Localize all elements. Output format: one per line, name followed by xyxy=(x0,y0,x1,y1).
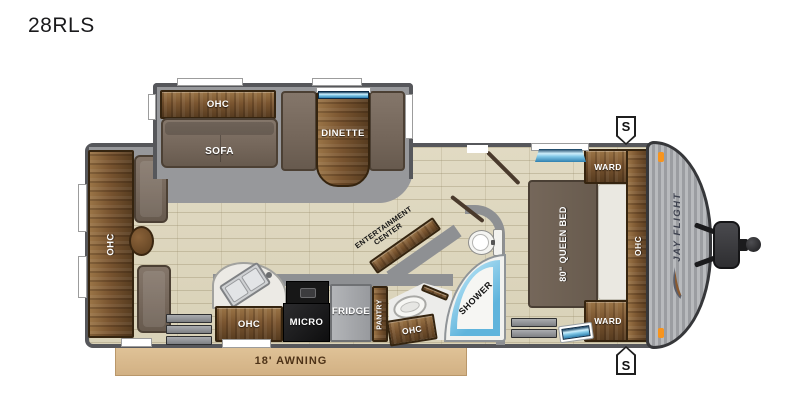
dinette-label: DINETTE xyxy=(321,128,364,139)
toilet-seat xyxy=(472,234,489,251)
window xyxy=(78,184,87,232)
speaker-bottom-label: S xyxy=(616,358,636,373)
window xyxy=(222,339,271,348)
awning-banner: 18' AWNING xyxy=(115,345,467,376)
ward-bottom-label: WARD xyxy=(594,316,622,326)
sofa: SOFA xyxy=(161,118,278,168)
micro-label: MICRO xyxy=(290,317,324,328)
speaker-badge-bottom: S xyxy=(616,346,636,375)
pantry-label: PANTRY xyxy=(377,299,384,329)
jayflight-bird-icon xyxy=(671,266,683,300)
fridge-label: FRIDGE xyxy=(332,306,370,317)
speaker-top-label: S xyxy=(616,119,636,134)
entry-steps-main xyxy=(166,314,212,347)
stove xyxy=(286,281,329,304)
kitchen-ohc-label: OHC xyxy=(238,319,260,330)
bed-pillow-strip xyxy=(598,184,628,300)
toilet xyxy=(468,227,503,258)
speaker-badge-top: S xyxy=(616,116,636,145)
window xyxy=(78,256,87,298)
window xyxy=(177,78,243,86)
bedroom-window xyxy=(535,149,586,162)
burner-icon xyxy=(300,288,316,298)
marker-light-top xyxy=(658,152,664,162)
sofa-back-cushion xyxy=(165,122,274,135)
floorplan-28rls: 28RLS 18' AWNING OHC OHC MICRO FRIDGE PA… xyxy=(0,0,800,409)
rear-round-table xyxy=(129,226,154,256)
step xyxy=(166,325,212,334)
kitchen-ohc-cabinet: OHC xyxy=(215,306,283,342)
marker-light-bottom xyxy=(658,328,664,338)
window xyxy=(405,94,413,139)
queen-bed: 80" QUEEN BED xyxy=(528,180,598,308)
sofa-ohc-label: OHC xyxy=(207,99,229,110)
faucet-icon xyxy=(266,272,272,278)
rear-ohc-label: OHC xyxy=(106,233,117,255)
fridge: FRIDGE xyxy=(330,284,372,342)
shower-stall: SHOWER xyxy=(444,254,506,342)
shower-label-box: SHOWER xyxy=(446,256,504,340)
sofa-ohc-cabinet: OHC xyxy=(160,90,276,119)
front-ohc-label: OHC xyxy=(633,235,643,255)
dinette-window xyxy=(318,91,369,99)
ward-top-label: WARD xyxy=(594,162,622,172)
window xyxy=(148,94,156,120)
sofa-cushion-seam xyxy=(220,135,222,162)
pantry: PANTRY xyxy=(372,286,388,342)
entry-steps-bedroom xyxy=(511,318,557,340)
bedroom-door-opening xyxy=(467,145,488,153)
window xyxy=(121,338,152,347)
brand-logo-text: JAY FLIGHT xyxy=(672,192,683,262)
hitch-ball xyxy=(746,237,761,252)
step xyxy=(166,336,212,345)
queen-bed-label: 80" QUEEN BED xyxy=(558,206,568,282)
bath-sink-bowl xyxy=(399,299,421,314)
kitchen-sink xyxy=(219,262,272,309)
rear-ohc-cabinet: OHC xyxy=(88,150,134,338)
step xyxy=(511,318,557,327)
model-title: 28RLS xyxy=(28,14,95,38)
bath-ohc-label: OHC xyxy=(401,323,422,336)
dinette-label-box: DINETTE xyxy=(303,126,383,140)
toilet-flush-icon xyxy=(491,240,495,245)
window xyxy=(312,78,362,86)
step xyxy=(166,314,212,323)
brand-logo: JAY FLIGHT xyxy=(667,181,687,311)
shower-label: SHOWER xyxy=(456,279,493,316)
microwave: MICRO xyxy=(283,303,330,342)
propane-cover xyxy=(713,221,740,269)
chair-cushion xyxy=(143,271,165,327)
awning-label: 18' AWNING xyxy=(255,355,328,367)
wardrobe-top: WARD xyxy=(584,149,632,184)
step xyxy=(511,329,557,338)
bedroom-bottom-window-pane xyxy=(561,325,590,340)
